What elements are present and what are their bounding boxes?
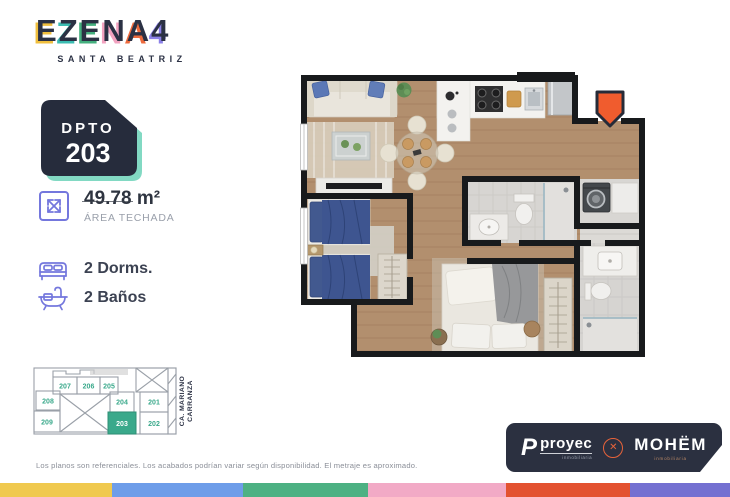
logo-letter: 4 bbox=[151, 14, 170, 48]
area-label: ÁREA TECHADA bbox=[84, 212, 175, 224]
bed-icon bbox=[36, 255, 70, 282]
stripe-segment bbox=[506, 483, 630, 497]
stripe-segment bbox=[112, 483, 243, 497]
bathrooms-label: 2 Baños bbox=[84, 289, 146, 307]
bed-double bbox=[442, 264, 538, 354]
stool-round bbox=[524, 321, 540, 337]
sofa-pillow bbox=[368, 81, 385, 98]
kitchen-sink bbox=[525, 88, 543, 110]
keyplan-unit: 206 bbox=[83, 384, 95, 391]
keyplan-drawing: 207 206 205 208 204 201 209 203 202 CA. … bbox=[28, 360, 200, 446]
keyplan-unit: 208 bbox=[42, 399, 54, 406]
brand-logo-wordmark: EZENA4 bbox=[36, 14, 216, 48]
keyplan-unit: 205 bbox=[103, 384, 115, 391]
bed-single-1 bbox=[308, 199, 370, 245]
logo-letter: E bbox=[36, 14, 59, 48]
flyer-page: EZENA4 SANTA BEATRIZ DPTO 203 49.78 m² Á… bbox=[0, 0, 730, 497]
laundry-counter bbox=[612, 183, 638, 213]
wardrobe-2 bbox=[544, 278, 572, 352]
keyplan-unit: 201 bbox=[148, 400, 160, 407]
area-spec: 49.78 m² ÁREA TECHADA bbox=[36, 188, 175, 224]
shower-2 bbox=[583, 318, 637, 352]
mohem-logo: MOHËM inmobiliaria bbox=[634, 435, 707, 461]
unit-badge-shape: DPTO 203 bbox=[33, 94, 147, 186]
keyplan-unit-203: 203 bbox=[116, 421, 128, 428]
bathrooms-spec: 2 Baños bbox=[36, 284, 146, 312]
logo-letter: Z bbox=[59, 14, 80, 48]
area-unit: m² bbox=[137, 188, 160, 209]
sofa-pillow bbox=[312, 80, 330, 98]
wardrobe-1 bbox=[378, 254, 407, 300]
logo-letter: N bbox=[102, 14, 126, 48]
disclaimer-text: Los planos son referenciales. Los acabad… bbox=[36, 461, 418, 470]
proyec-name: proyec bbox=[540, 435, 592, 454]
logo-letter: E bbox=[80, 14, 103, 48]
tv bbox=[326, 183, 382, 189]
brand-subtitle: SANTA BEATRIZ bbox=[36, 54, 208, 64]
keyplan-unit: 202 bbox=[148, 421, 160, 428]
toilet-2 bbox=[585, 283, 611, 301]
developer-logos: P proyec inmobiliaria ✕ MOHËM inmobiliar… bbox=[506, 423, 722, 472]
area-number: 49.78 bbox=[84, 188, 132, 210]
proyec-logo: P proyec inmobiliaria bbox=[521, 435, 592, 460]
area-value: 49.78 m² bbox=[84, 188, 175, 210]
floorplan-drawing bbox=[292, 66, 652, 366]
floorplan bbox=[292, 66, 652, 366]
building-keyplan: 207 206 205 208 204 201 209 203 202 CA. … bbox=[28, 360, 200, 451]
laundry bbox=[580, 179, 640, 243]
unit-badge: DPTO 203 bbox=[33, 94, 147, 191]
brand-logo: EZENA4 SANTA BEATRIZ bbox=[36, 14, 216, 64]
cutting-board bbox=[507, 91, 521, 107]
entrance-marker bbox=[597, 92, 623, 126]
proyec-subtitle: inmobiliaria bbox=[562, 455, 592, 460]
bedrooms-label: 2 Dorms. bbox=[84, 260, 152, 278]
stool bbox=[448, 124, 457, 133]
street-label-line1: CA. MARIANO bbox=[179, 376, 186, 426]
stripe-segment bbox=[368, 483, 506, 497]
expand-icon bbox=[36, 188, 72, 224]
tv-console bbox=[316, 178, 392, 194]
toilet-1 bbox=[514, 194, 534, 225]
shower-1 bbox=[544, 183, 574, 240]
keyplan-unit: 204 bbox=[116, 400, 128, 407]
bed-single-2 bbox=[308, 254, 370, 300]
vanity-2 bbox=[583, 246, 637, 276]
mohem-subtitle: inmobiliaria bbox=[654, 456, 686, 461]
stripe-segment bbox=[0, 483, 112, 497]
street-label-line2: CARRANZA bbox=[187, 380, 194, 422]
stripe-segment bbox=[243, 483, 368, 497]
keyplan-unit: 209 bbox=[41, 420, 53, 427]
keyplan-unit: 207 bbox=[59, 384, 71, 391]
partnership-x-icon: ✕ bbox=[603, 438, 623, 458]
stool bbox=[448, 110, 457, 119]
stripe-segment bbox=[630, 483, 730, 497]
unit-badge-number: 203 bbox=[65, 138, 110, 168]
brand-color-stripe bbox=[0, 483, 730, 497]
proyec-p-glyph: P bbox=[521, 438, 537, 458]
bedrooms-spec: 2 Dorms. bbox=[36, 255, 152, 282]
nightstand bbox=[306, 245, 323, 255]
bathroom-1 bbox=[465, 179, 577, 243]
washing-machine bbox=[583, 183, 610, 212]
bathtub-icon bbox=[36, 284, 70, 312]
bathroom-2 bbox=[580, 243, 640, 354]
coffee-maker bbox=[446, 92, 455, 101]
logo-letter: A bbox=[127, 14, 151, 48]
stove bbox=[475, 86, 503, 112]
coffee-table bbox=[332, 132, 370, 160]
unit-badge-label: DPTO bbox=[61, 120, 114, 137]
mohem-name: MOHËM bbox=[634, 435, 707, 455]
plant bbox=[397, 83, 412, 98]
vanity-1 bbox=[470, 214, 508, 240]
sofa bbox=[307, 79, 397, 117]
